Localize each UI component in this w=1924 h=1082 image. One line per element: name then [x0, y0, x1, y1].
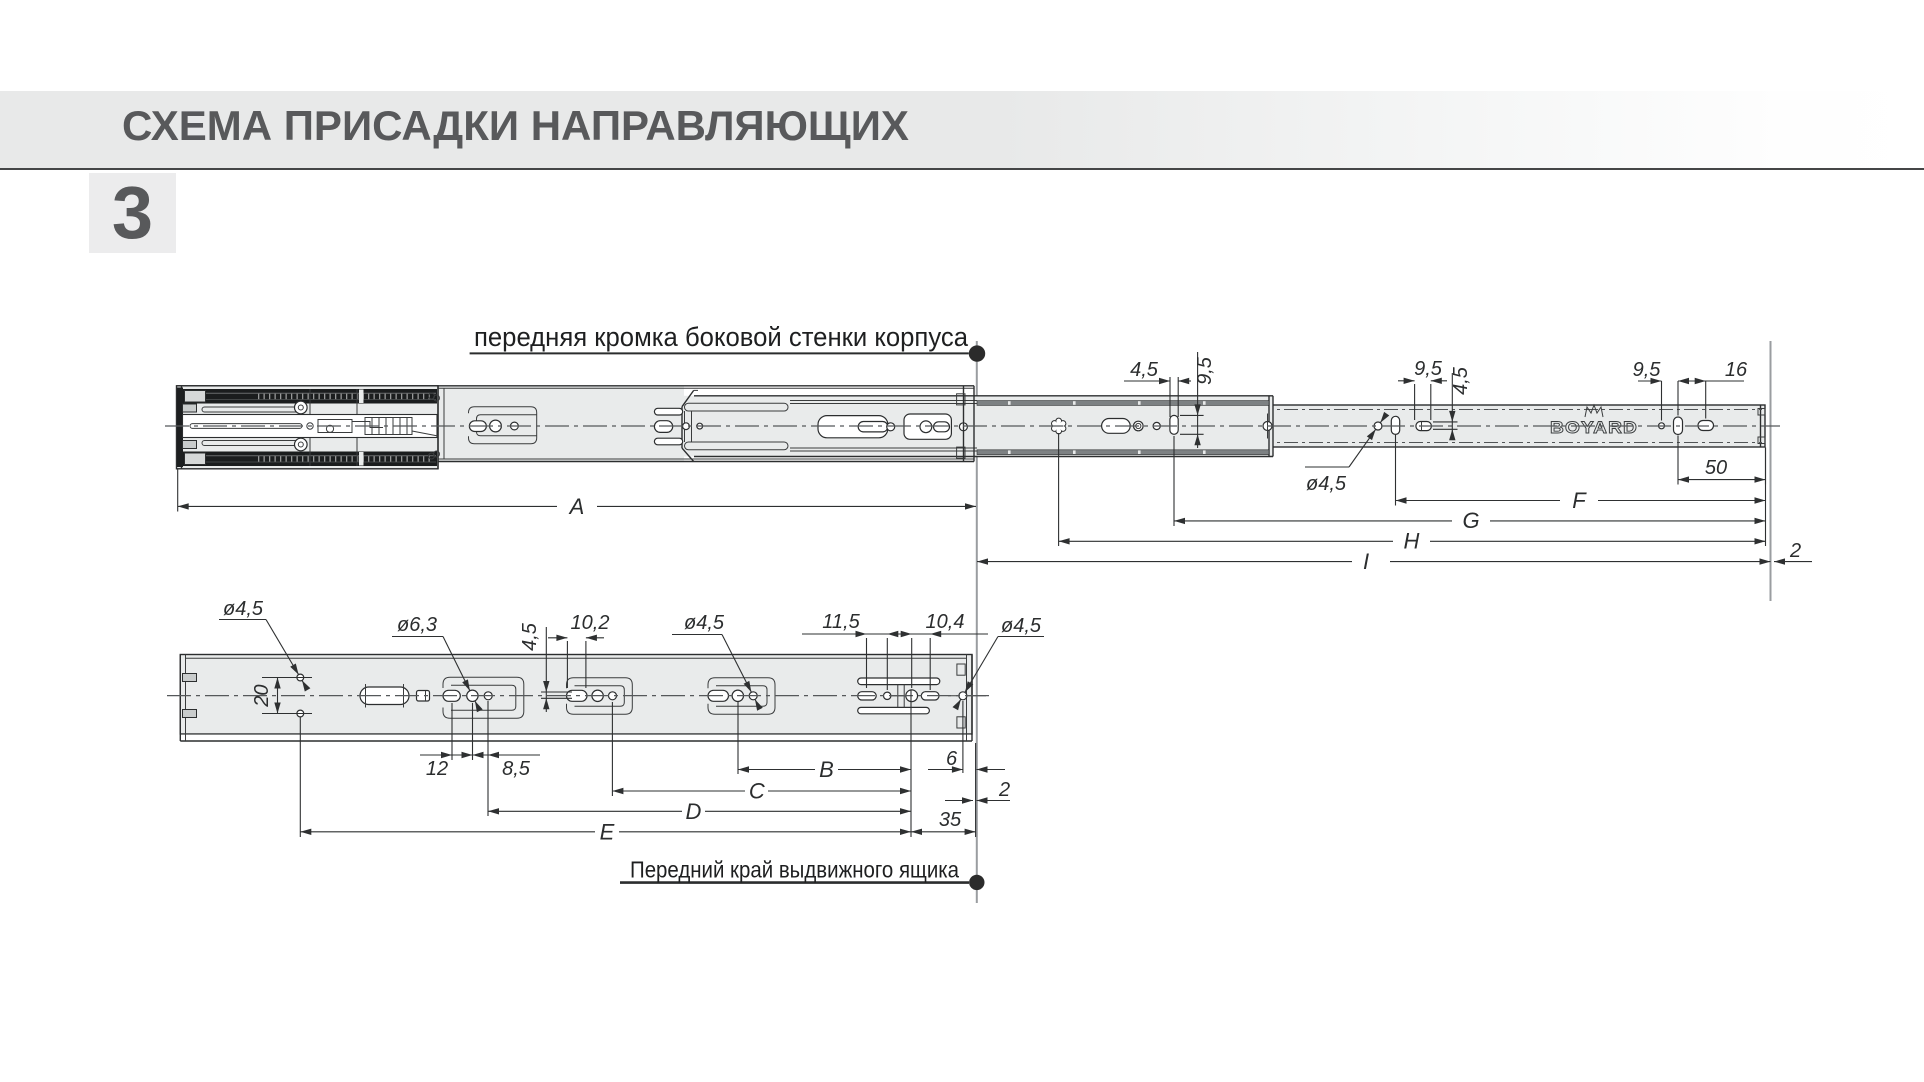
svg-text:2: 2	[1789, 540, 1801, 562]
svg-text:9,5: 9,5	[1633, 359, 1662, 381]
svg-text:E: E	[600, 819, 615, 844]
svg-text:ø4,5: ø4,5	[1001, 615, 1042, 637]
svg-text:4,5: 4,5	[1130, 359, 1159, 381]
svg-text:11,5: 11,5	[822, 611, 860, 633]
svg-text:12: 12	[426, 758, 448, 780]
svg-text:H: H	[1404, 529, 1420, 554]
svg-text:9,5: 9,5	[1194, 356, 1216, 385]
svg-text:ø4,5: ø4,5	[684, 612, 725, 634]
svg-text:передняя кромка боковой стенки: передняя кромка боковой стенки корпуса	[474, 322, 969, 352]
svg-text:10,4: 10,4	[926, 611, 965, 633]
svg-text:35: 35	[939, 809, 962, 831]
svg-text:4,5: 4,5	[1450, 366, 1472, 395]
svg-text:Передний край выдвижного ящика: Передний край выдвижного ящика	[630, 857, 960, 883]
svg-text:C: C	[749, 779, 765, 804]
svg-text:20: 20	[251, 684, 273, 707]
svg-text:D: D	[686, 799, 702, 824]
svg-text:4,5: 4,5	[519, 622, 541, 651]
svg-text:16: 16	[1725, 359, 1748, 381]
svg-text:A: A	[568, 494, 585, 519]
svg-text:ø4,5: ø4,5	[1306, 473, 1347, 495]
svg-text:8,5: 8,5	[502, 758, 531, 780]
svg-text:G: G	[1462, 508, 1479, 533]
svg-text:2: 2	[998, 779, 1010, 801]
svg-text:B: B	[819, 757, 834, 782]
svg-text:BOYARD: BOYARD	[1550, 418, 1638, 437]
svg-text:9,5: 9,5	[1414, 358, 1443, 380]
svg-text:ø6,3: ø6,3	[397, 614, 437, 636]
svg-text:10,2: 10,2	[571, 612, 610, 634]
svg-text:50: 50	[1705, 457, 1727, 479]
svg-text:I: I	[1363, 549, 1369, 574]
svg-text:ø4,5: ø4,5	[223, 598, 264, 620]
svg-text:6: 6	[946, 748, 958, 770]
svg-text:F: F	[1572, 488, 1587, 513]
